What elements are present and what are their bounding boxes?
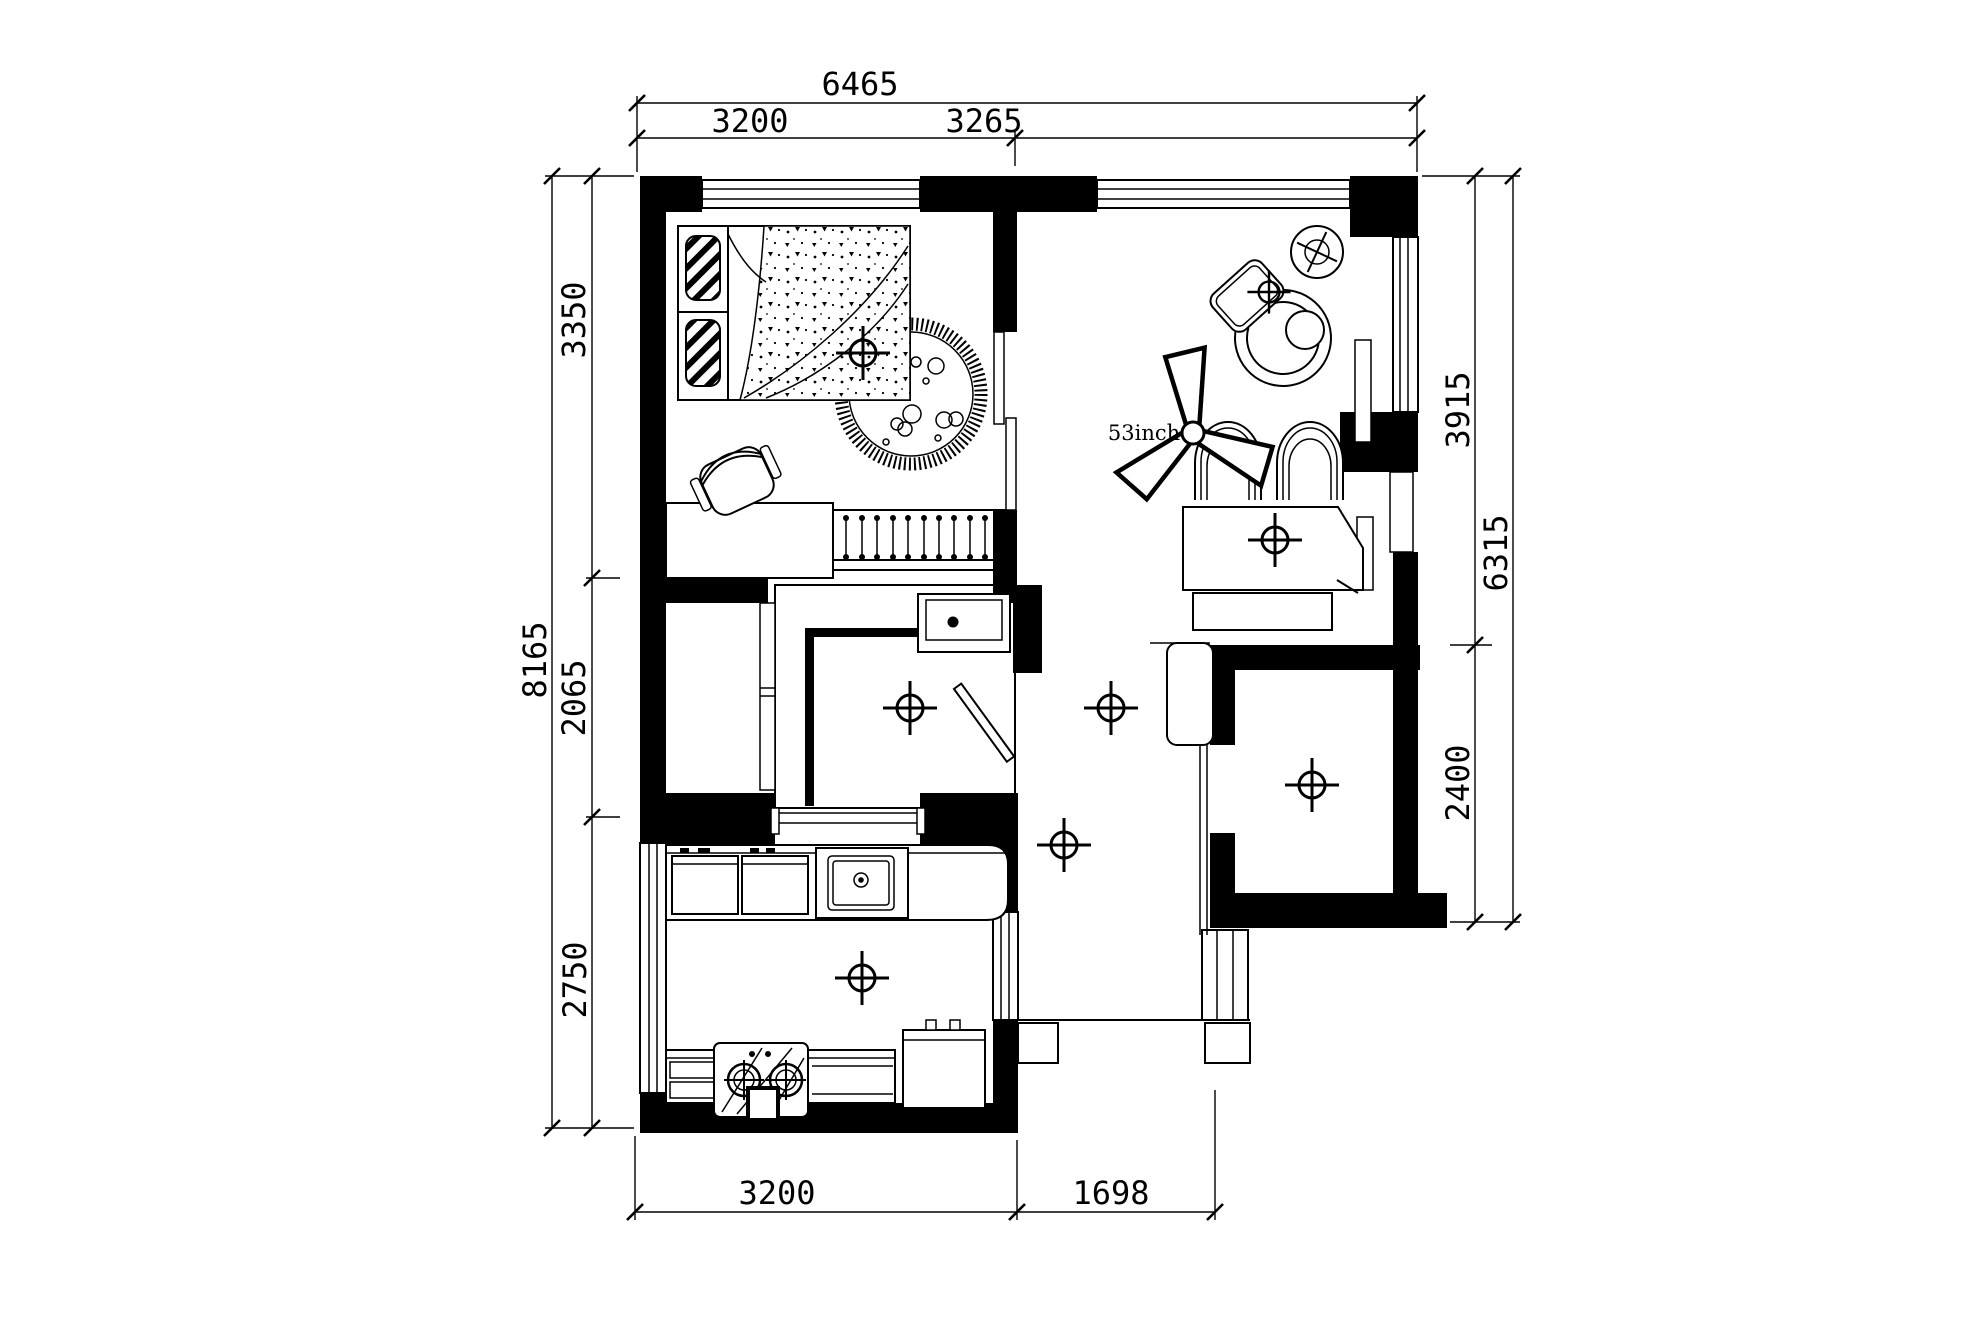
ceiling-light-icon <box>1037 818 1091 872</box>
shower-wall <box>805 628 814 806</box>
dim-right-seg2: 2400 <box>1439 744 1477 821</box>
entry-step <box>1018 1023 1058 1063</box>
bed <box>678 226 910 400</box>
balcony-door-panel <box>1390 472 1413 552</box>
duct-shaft <box>760 603 775 790</box>
fan-size-label: 53inch <box>1108 421 1180 445</box>
blanket <box>740 226 910 400</box>
kitchen-pass-window <box>993 912 1018 1020</box>
entry <box>1017 1020 1250 1063</box>
right-wall-window <box>1393 237 1418 412</box>
left-wall-window <box>640 843 666 1093</box>
sliding-door-panel <box>994 332 1004 424</box>
entry-console <box>1193 593 1332 630</box>
dim-top-seg1: 3200 <box>711 102 788 140</box>
dim-right-seg1: 3915 <box>1439 371 1477 448</box>
dim-top-seg2: 3265 <box>945 102 1022 140</box>
utility-room <box>1167 643 1213 935</box>
tub-chair <box>1277 422 1343 500</box>
kitchen-sink <box>816 848 908 918</box>
kitchen-door-threshold <box>771 808 925 834</box>
pillow <box>686 236 720 300</box>
bedroom <box>666 226 1016 578</box>
dim-right-total: 6315 <box>1477 514 1515 591</box>
pillow <box>686 320 720 386</box>
entry-side-window <box>1202 930 1248 1020</box>
ceiling-light-icon <box>835 951 889 1005</box>
pot-stand <box>748 1088 778 1120</box>
kitchen <box>666 845 1008 1120</box>
ceiling-light-icon <box>1084 681 1138 735</box>
floor-plan-canvas: 53inch <box>0 0 1968 1340</box>
dim-bottom-seg2: 1698 <box>1072 1174 1149 1212</box>
living-room-window <box>1097 180 1350 208</box>
bedroom-window <box>702 180 920 208</box>
water-heater <box>903 1020 985 1108</box>
kitchen-counter-top <box>666 845 1008 920</box>
ceiling-light-icon <box>883 681 937 735</box>
dim-left-total: 8165 <box>516 621 554 698</box>
dim-left-seg2: 2065 <box>555 659 593 736</box>
ceiling-light-icon <box>1285 758 1339 812</box>
dim-top-total: 6465 <box>821 65 898 103</box>
sliding-door-panel <box>1006 418 1016 510</box>
bathroom-door-leaf <box>954 684 1014 762</box>
shower-wall <box>805 628 930 637</box>
pendant-lamp-icon <box>1288 223 1346 281</box>
dim-left-seg3: 2750 <box>556 941 594 1018</box>
living-room: 53inch <box>1108 223 1363 643</box>
floor-plan-page: 53inch <box>0 0 1968 1340</box>
corner-desk <box>1183 507 1363 590</box>
cooktop <box>714 1043 808 1120</box>
balcony-door-panel <box>1355 340 1371 442</box>
wardrobe-rail <box>833 503 1007 578</box>
bathroom-vanity <box>918 594 1010 652</box>
dim-bottom-seg1: 3200 <box>738 1174 815 1212</box>
dim-left-seg1: 3350 <box>555 281 593 358</box>
entry-step <box>1205 1023 1250 1063</box>
ottoman <box>1206 256 1287 336</box>
utility-door-leaf <box>1167 643 1213 745</box>
desk <box>666 503 833 578</box>
